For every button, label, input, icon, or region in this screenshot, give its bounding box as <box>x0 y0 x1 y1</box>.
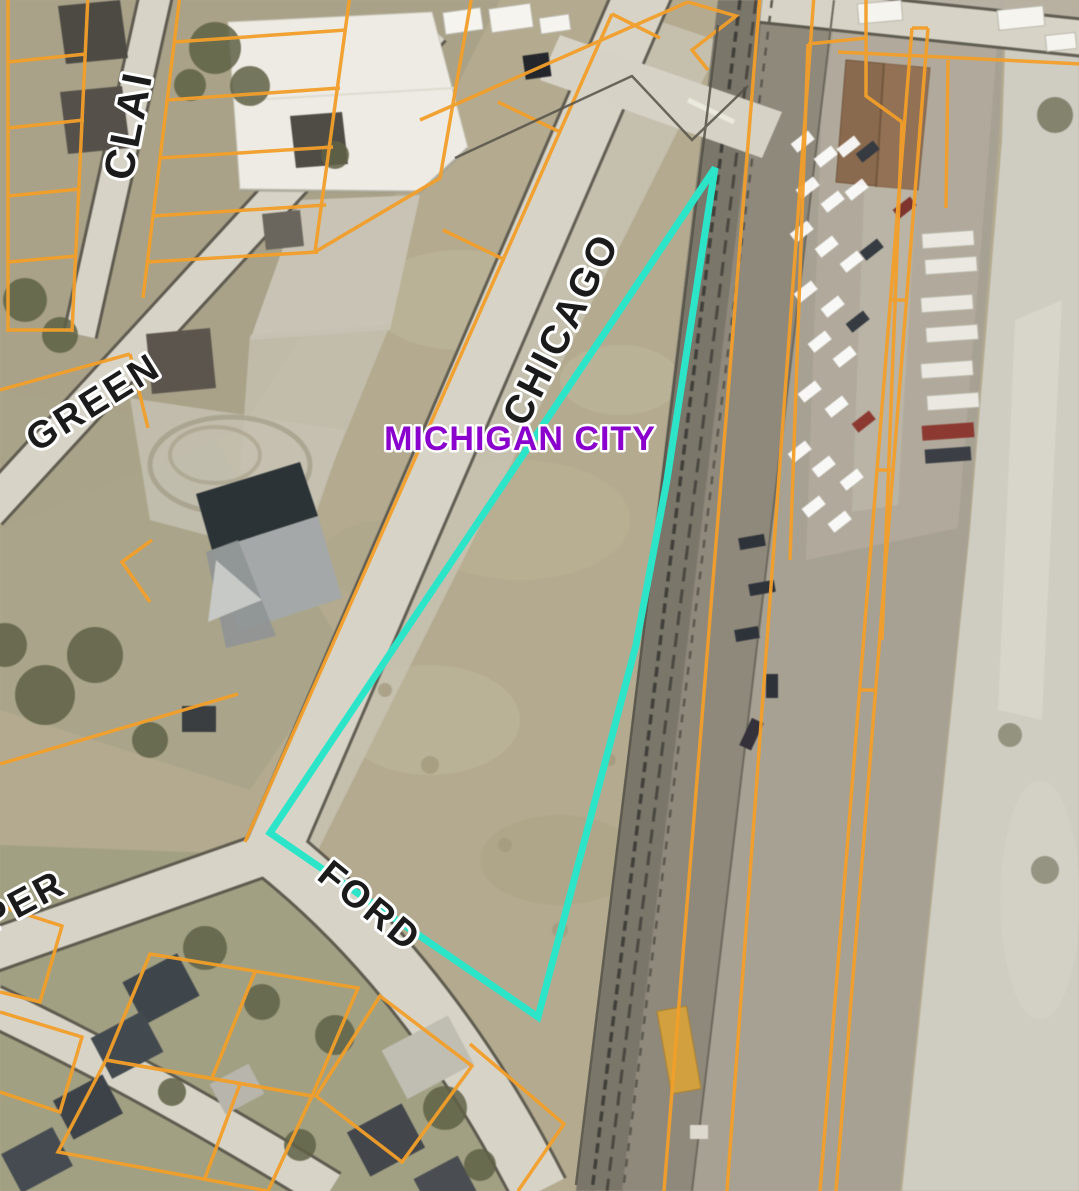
commercial-building <box>228 12 468 192</box>
city-label: MICHIGAN CITY <box>384 420 656 458</box>
map-canvas[interactable]: CHICAGO GREEN CLAI FORD PER MICHIGAN CIT… <box>0 0 1079 1191</box>
